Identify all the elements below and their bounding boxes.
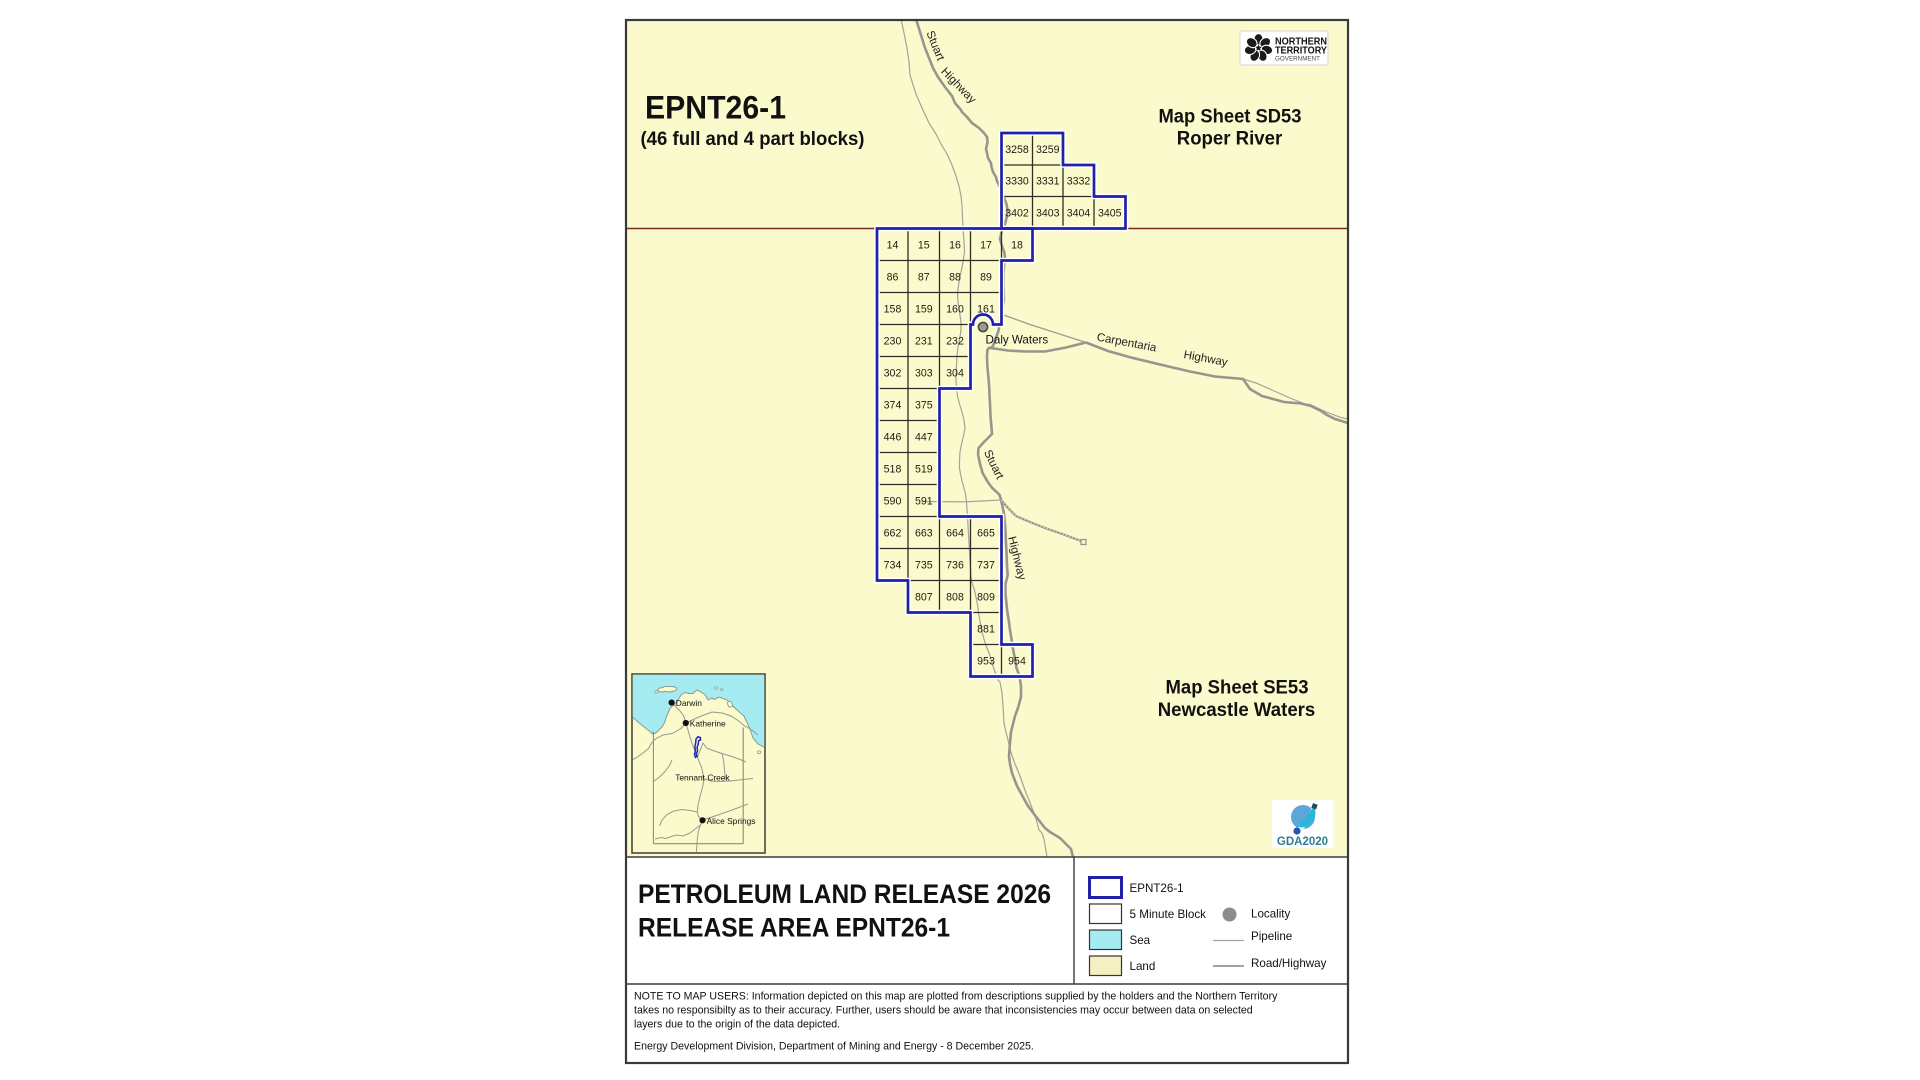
svg-text:519: 519 xyxy=(915,463,933,475)
svg-text:Map Sheet SD53: Map Sheet SD53 xyxy=(1159,106,1302,128)
svg-text:590: 590 xyxy=(884,495,902,507)
svg-text:GOVERNMENT: GOVERNMENT xyxy=(1275,56,1320,63)
svg-text:layers due to the origin of th: layers due to the origin of the data dep… xyxy=(634,1019,840,1031)
svg-text:Roper River: Roper River xyxy=(1177,128,1283,150)
svg-text:18: 18 xyxy=(1011,239,1023,251)
svg-text:Road/Highway: Road/Highway xyxy=(1251,957,1327,970)
svg-text:665: 665 xyxy=(977,527,995,539)
svg-text:807: 807 xyxy=(915,591,933,603)
svg-text:17: 17 xyxy=(980,239,992,251)
svg-text:809: 809 xyxy=(977,591,995,603)
svg-text:5 Minute Block: 5 Minute Block xyxy=(1130,907,1207,921)
svg-text:953: 953 xyxy=(977,655,995,667)
svg-text:3330: 3330 xyxy=(1005,176,1029,188)
svg-text:232: 232 xyxy=(946,335,964,347)
svg-text:Land: Land xyxy=(1130,960,1156,973)
svg-text:Locality: Locality xyxy=(1251,908,1291,921)
svg-text:16: 16 xyxy=(949,239,961,251)
svg-text:662: 662 xyxy=(884,527,902,539)
svg-text:303: 303 xyxy=(915,367,933,379)
svg-text:3405: 3405 xyxy=(1098,207,1122,219)
svg-text:230: 230 xyxy=(884,335,902,347)
svg-text:735: 735 xyxy=(915,559,933,571)
svg-text:PETROLEUM LAND RELEASE 2026: PETROLEUM LAND RELEASE 2026 xyxy=(638,879,1051,909)
svg-text:3258: 3258 xyxy=(1005,144,1029,156)
svg-text:(46 full and 4 part blocks): (46 full and 4 part blocks) xyxy=(641,128,865,150)
svg-text:Alice Springs: Alice Springs xyxy=(707,816,756,826)
svg-text:663: 663 xyxy=(915,527,933,539)
svg-text:737: 737 xyxy=(977,559,995,571)
svg-text:86: 86 xyxy=(887,271,899,283)
svg-text:160: 160 xyxy=(946,303,964,315)
svg-text:88: 88 xyxy=(949,271,961,283)
svg-text:881: 881 xyxy=(977,623,995,635)
svg-text:664: 664 xyxy=(946,527,964,539)
svg-text:EPNT26-1: EPNT26-1 xyxy=(1130,882,1184,895)
svg-text:15: 15 xyxy=(918,239,930,251)
svg-text:302: 302 xyxy=(884,367,902,379)
svg-text:159: 159 xyxy=(915,303,933,315)
svg-text:3403: 3403 xyxy=(1036,207,1060,219)
svg-text:447: 447 xyxy=(915,431,933,443)
svg-text:Newcastle Waters: Newcastle Waters xyxy=(1158,699,1316,721)
svg-text:NOTE TO MAP USERS: Information: NOTE TO MAP USERS: Information depicted … xyxy=(634,991,1278,1003)
svg-text:Daly Waters: Daly Waters xyxy=(986,334,1049,347)
svg-text:14: 14 xyxy=(887,239,899,251)
svg-text:3331: 3331 xyxy=(1036,176,1060,188)
svg-text:takes no responsibilty as to t: takes no responsibilty as to their accur… xyxy=(634,1005,1253,1017)
svg-text:446: 446 xyxy=(884,431,902,443)
svg-text:734: 734 xyxy=(884,559,902,571)
svg-text:89: 89 xyxy=(980,271,992,283)
svg-text:808: 808 xyxy=(946,591,964,603)
svg-text:3259: 3259 xyxy=(1036,144,1060,156)
svg-text:954: 954 xyxy=(1008,655,1026,667)
svg-text:3402: 3402 xyxy=(1005,207,1029,219)
svg-text:374: 374 xyxy=(884,399,902,411)
svg-text:231: 231 xyxy=(915,335,933,347)
svg-text:3404: 3404 xyxy=(1067,207,1091,219)
svg-text:GDA2020: GDA2020 xyxy=(1277,836,1328,848)
svg-text:375: 375 xyxy=(915,399,933,411)
svg-text:Map Sheet SE53: Map Sheet SE53 xyxy=(1166,677,1309,699)
svg-text:591: 591 xyxy=(915,495,933,507)
svg-text:RELEASE AREA EPNT26-1: RELEASE AREA EPNT26-1 xyxy=(638,913,950,943)
svg-text:158: 158 xyxy=(884,303,902,315)
svg-text:EPNT26-1: EPNT26-1 xyxy=(645,90,786,126)
svg-text:Darwin: Darwin xyxy=(676,698,702,708)
svg-text:87: 87 xyxy=(918,271,930,283)
svg-text:Energy Development Division, D: Energy Development Division, Department … xyxy=(634,1041,1034,1053)
svg-text:518: 518 xyxy=(884,463,902,475)
svg-text:Katherine: Katherine xyxy=(690,719,726,729)
svg-text:304: 304 xyxy=(946,367,964,379)
svg-text:161: 161 xyxy=(977,303,995,315)
svg-text:736: 736 xyxy=(946,559,964,571)
svg-text:Pipeline: Pipeline xyxy=(1251,930,1292,943)
svg-text:Tennant Creek: Tennant Creek xyxy=(675,773,730,783)
svg-text:3332: 3332 xyxy=(1067,176,1091,188)
svg-text:Sea: Sea xyxy=(1130,934,1151,947)
